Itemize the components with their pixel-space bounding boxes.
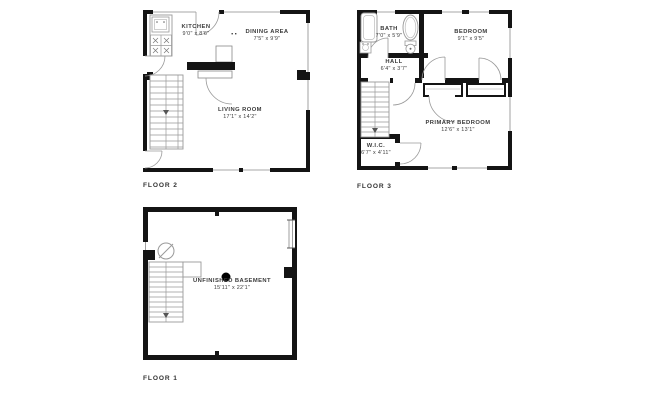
floor-2-label: FLOOR 2 xyxy=(143,182,178,189)
room-dims: 17'1" x 14'2" xyxy=(218,114,262,120)
oval-tub-icon xyxy=(403,15,418,40)
floor-plan-image: KITCHEN 9'0" x 8'6" DINING AREA 7'5" x 9… xyxy=(0,0,652,416)
room-label-basement: UNFINISHED BASEMENT 15'11" x 22'1" xyxy=(193,278,271,291)
closet xyxy=(216,46,232,62)
floor-1-label: FLOOR 1 xyxy=(143,375,178,382)
room-label-dining: DINING AREA 7'5" x 9'9" xyxy=(245,29,288,42)
room-label-living: LIVING ROOM 17'1" x 14'2" xyxy=(218,107,262,120)
room-dims: 12'6" x 13'1" xyxy=(425,127,490,133)
room-dims: 7'5" x 9'9" xyxy=(245,36,288,42)
room-name: PRIMARY BEDROOM xyxy=(425,120,490,127)
room-dims: 9'0" x 8'6" xyxy=(182,31,211,37)
light-fixture-icon xyxy=(158,243,174,259)
room-label-hall: HALL 6'4" x 3'7" xyxy=(381,59,408,72)
kitchen-counter xyxy=(150,15,172,56)
sink-icon xyxy=(360,42,371,53)
stair-landing xyxy=(183,262,201,277)
stairs-icon xyxy=(150,75,183,149)
dimension-marker xyxy=(232,33,233,34)
room-dims: 7'0" x 5'9" xyxy=(376,33,403,39)
room-dims: 15'11" x 22'1" xyxy=(193,285,271,291)
toilet-icon xyxy=(405,41,416,53)
room-name: KITCHEN xyxy=(182,24,211,31)
stairs-icon xyxy=(149,262,201,322)
dimension-marker xyxy=(235,33,236,34)
closet xyxy=(424,84,505,98)
room-name: W.I.C. xyxy=(361,143,391,150)
room-dims: 6'7" x 4'11" xyxy=(361,150,391,156)
room-name: UNFINISHED BASEMENT xyxy=(193,278,271,285)
room-label-primary-bedroom: PRIMARY BEDROOM 12'6" x 13'1" xyxy=(425,120,490,133)
room-dims: 6'4" x 3'7" xyxy=(381,66,408,72)
room-name: BEDROOM xyxy=(454,29,487,36)
room-label-bath: BATH 7'0" x 5'9" xyxy=(376,26,403,39)
room-dims: 9'1" x 9'5" xyxy=(454,36,487,42)
door-leaf xyxy=(198,71,232,78)
room-label-wic: W.I.C. 6'7" x 4'11" xyxy=(361,143,391,156)
room-label-kitchen: KITCHEN 9'0" x 8'6" xyxy=(182,24,211,37)
room-name: LIVING ROOM xyxy=(218,107,262,114)
room-name: DINING AREA xyxy=(245,29,288,36)
room-label-bedroom: BEDROOM 9'1" x 9'5" xyxy=(454,29,487,42)
room-name: HALL xyxy=(381,59,408,66)
stairs-icon xyxy=(361,82,389,137)
floor-3-label: FLOOR 3 xyxy=(357,183,392,190)
room-name: BATH xyxy=(376,26,403,33)
